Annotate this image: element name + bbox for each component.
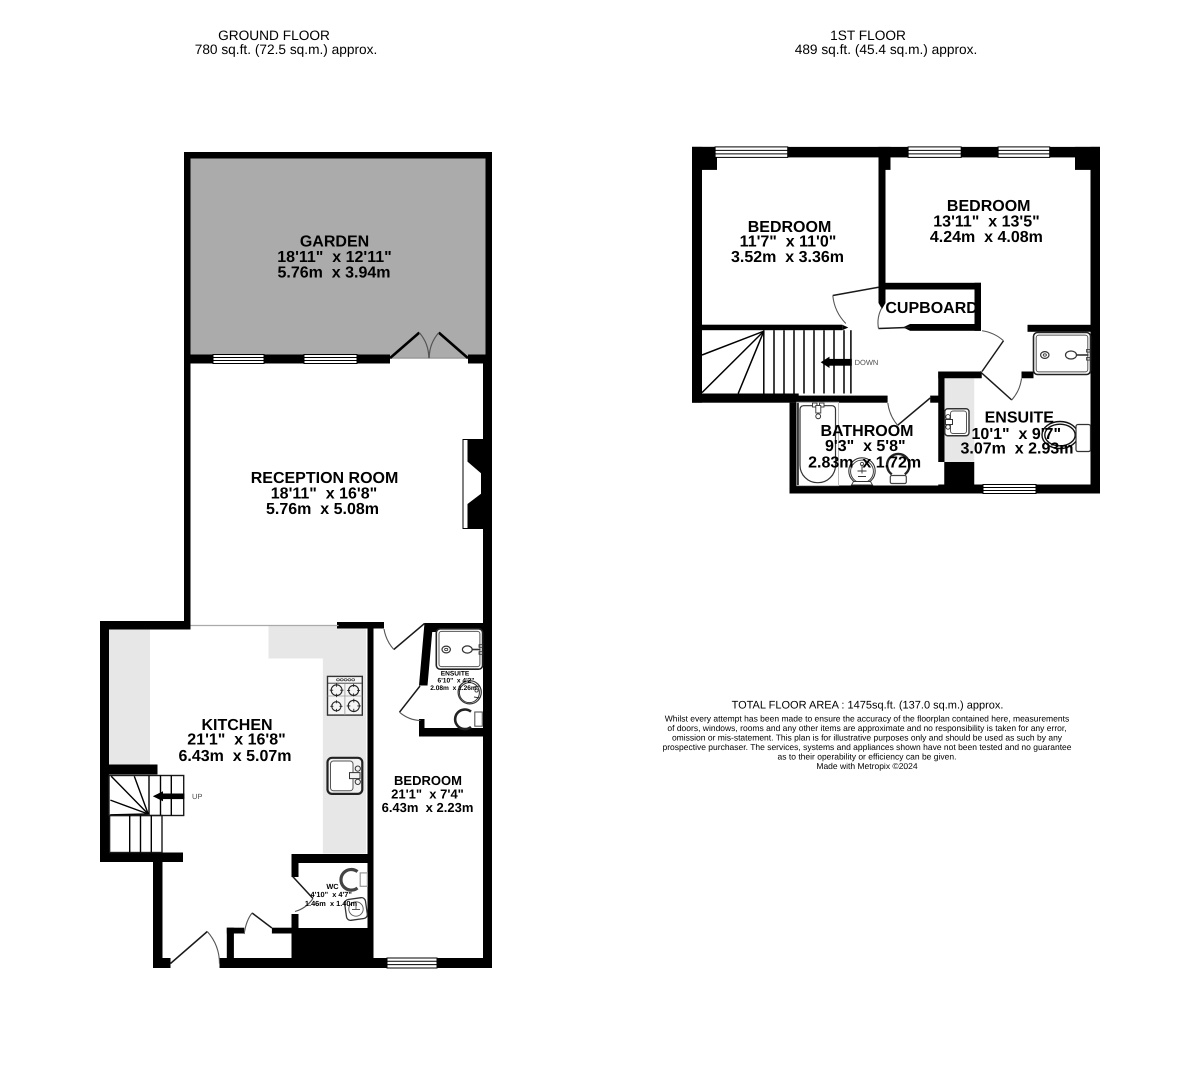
svg-text:6.43m x 5.07m: 6.43m x 5.07m (179, 748, 292, 765)
svg-text:21'1" x 16'8": 21'1" x 16'8" (187, 732, 285, 749)
svg-text:780 sq.ft. (72.5 sq.m.) approx: 780 sq.ft. (72.5 sq.m.) approx. (195, 42, 378, 57)
svg-text:prospective purchaser. The ser: prospective purchaser. The services, sys… (662, 742, 1071, 752)
svg-text:as to their operability or eff: as to their operability or efficiency ca… (778, 752, 957, 762)
svg-text:11'7" x 11'0": 11'7" x 11'0" (740, 234, 837, 251)
svg-text:6'10" x 4'2": 6'10" x 4'2" (438, 678, 475, 685)
svg-text:3.07m x 2.93m: 3.07m x 2.93m (961, 441, 1074, 458)
svg-text:2.08m x 1.26m: 2.08m x 1.26m (430, 685, 477, 692)
svg-text:5.76m x 5.08m: 5.76m x 5.08m (266, 501, 379, 518)
svg-text:ENSUITE: ENSUITE (441, 671, 470, 678)
svg-text:UP: UP (192, 792, 202, 801)
svg-text:5.76m x 3.94m: 5.76m x 3.94m (278, 265, 391, 282)
svg-text:DOWN: DOWN (855, 358, 879, 367)
svg-text:3.52m x 3.36m: 3.52m x 3.36m (731, 249, 844, 266)
svg-text:GARDEN: GARDEN (300, 234, 369, 251)
svg-text:4.24m x 4.08m: 4.24m x 4.08m (930, 229, 1043, 246)
svg-text:1.46m x 1.40m: 1.46m x 1.40m (305, 899, 358, 908)
svg-text:BEDROOM: BEDROOM (947, 198, 1031, 215)
svg-text:RECEPTION ROOM: RECEPTION ROOM (251, 470, 399, 487)
svg-text:4'10" x 4'7": 4'10" x 4'7" (311, 890, 353, 899)
svg-text:TOTAL FLOOR AREA : 1475sq.ft.: TOTAL FLOOR AREA : 1475sq.ft. (137.0 sq.… (732, 700, 1004, 712)
svg-text:GROUND FLOOR: GROUND FLOOR (218, 28, 330, 43)
svg-text:489 sq.ft. (45.4 sq.m.) approx: 489 sq.ft. (45.4 sq.m.) approx. (795, 42, 978, 57)
svg-text:9'3" x 5'8": 9'3" x 5'8" (825, 438, 906, 455)
svg-text:2.83m x 1.72m: 2.83m x 1.72m (808, 454, 921, 471)
svg-text:18'11" x 16'8": 18'11" x 16'8" (271, 486, 377, 503)
svg-text:ENSUITE: ENSUITE (985, 410, 1055, 427)
svg-text:CUPBOARD: CUPBOARD (885, 300, 977, 317)
svg-text:Whilst every attempt has been: Whilst every attempt has been made to en… (665, 714, 1069, 724)
svg-text:1ST FLOOR: 1ST FLOOR (830, 28, 906, 43)
svg-text:Made with Metropix ©2024: Made with Metropix ©2024 (816, 761, 918, 771)
svg-text:of doors, windows, rooms and a: of doors, windows, rooms and any other i… (667, 723, 1066, 733)
svg-text:6.43m x 2.23m: 6.43m x 2.23m (382, 800, 474, 815)
svg-text:18'11" x 12'11": 18'11" x 12'11" (277, 249, 391, 266)
svg-text:omission or mis-statement. Thi: omission or mis-statement. This plan is … (672, 733, 1063, 743)
